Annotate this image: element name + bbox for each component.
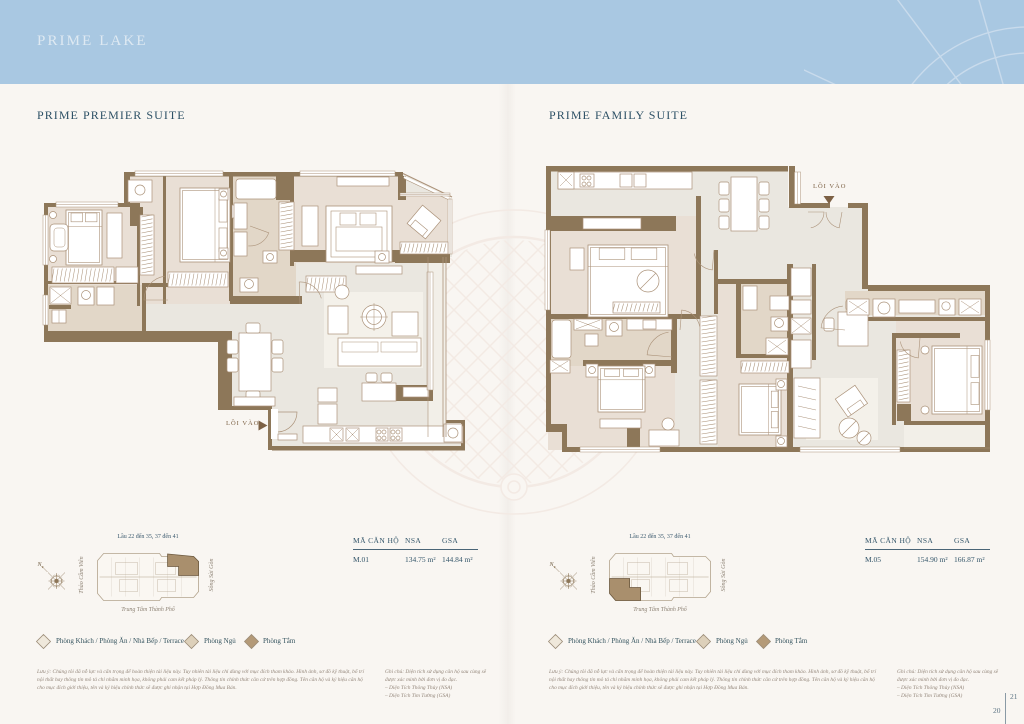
svg-text:N: N	[37, 562, 43, 568]
svg-text:N: N	[549, 562, 555, 568]
